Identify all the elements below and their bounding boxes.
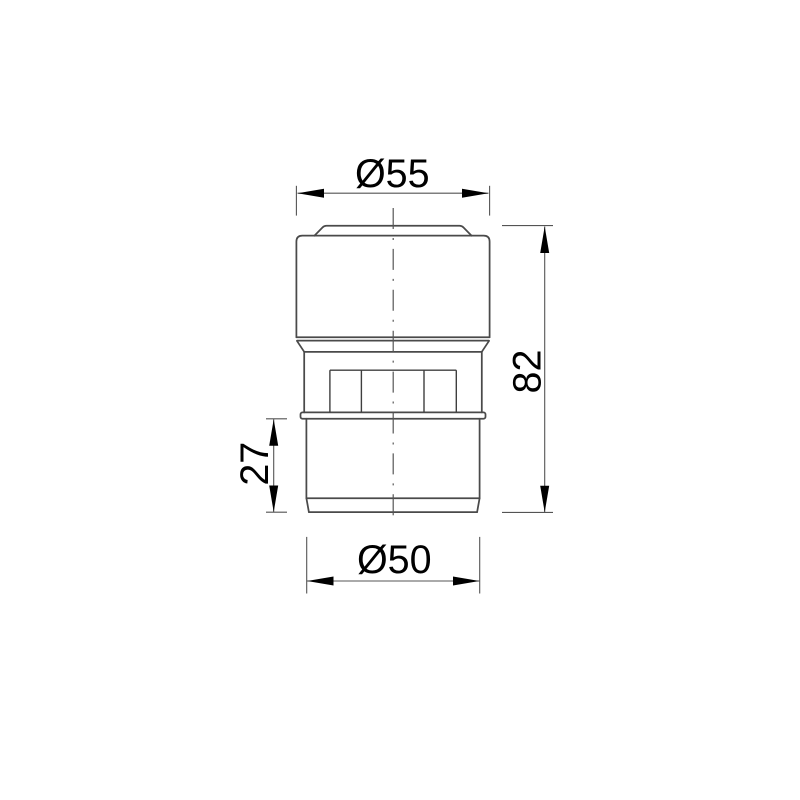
svg-text:82: 82 bbox=[505, 350, 549, 394]
svg-text:Ø50: Ø50 bbox=[357, 538, 432, 582]
svg-text:Ø55: Ø55 bbox=[355, 152, 430, 196]
svg-text:27: 27 bbox=[233, 442, 277, 486]
